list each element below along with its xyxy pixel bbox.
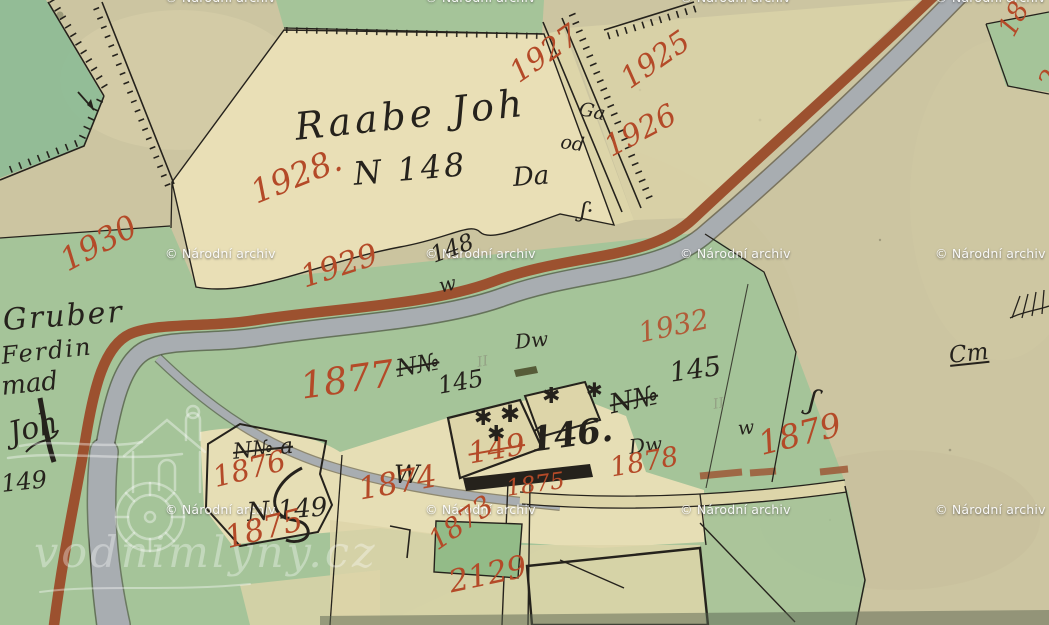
green-garden: [434, 521, 522, 578]
map-artwork: [0, 0, 1049, 625]
historical-map-scan: © Národní archiv© Národní archiv© Národn…: [0, 0, 1049, 625]
